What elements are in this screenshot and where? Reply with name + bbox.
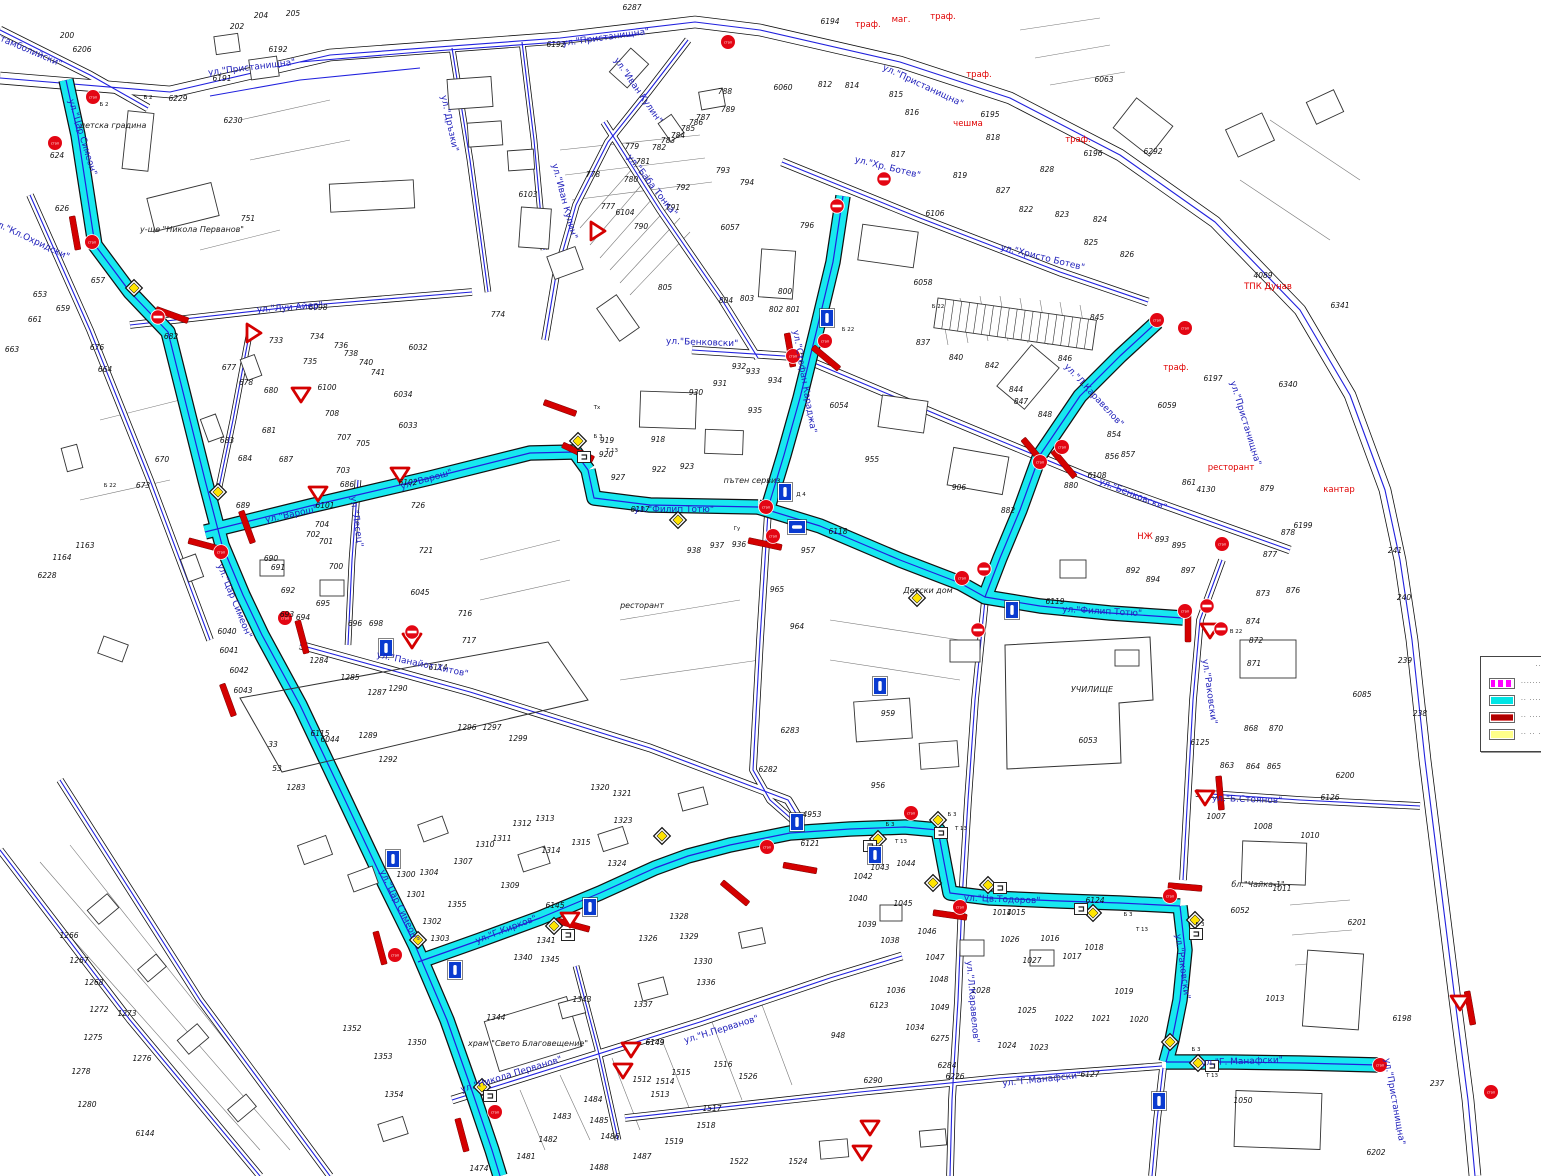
parcel-number: 4953 xyxy=(802,810,821,819)
parcel-number: 812 xyxy=(818,80,833,89)
parcel-number: 6043 xyxy=(233,686,252,695)
sign-code-label: Б 22 xyxy=(932,304,945,310)
parcel-number: 6202 xyxy=(1366,1148,1385,1157)
parcel-number: 6195 xyxy=(980,110,999,119)
one-way-sign-icon xyxy=(788,520,807,535)
parcel-number: 1289 xyxy=(358,731,377,740)
parcel-number: 1044 xyxy=(896,859,915,868)
parcel-number: 6283 xyxy=(780,726,799,735)
poi-label: траф. xyxy=(855,20,881,30)
legend: ················ ······ ······ ·· · xyxy=(1480,656,1541,752)
one-way-sign-icon xyxy=(448,961,463,980)
parcel-number: 6275 xyxy=(930,1034,949,1043)
parcel-number: 1284 xyxy=(309,656,328,665)
give-way-sign-icon xyxy=(591,222,605,240)
sign-code-label: Т 13 xyxy=(894,839,908,845)
parcel-number: 819 xyxy=(953,171,968,180)
building xyxy=(1060,560,1086,578)
parcel-number: 803 xyxy=(740,294,755,303)
parcel-number: 6200 xyxy=(1335,771,1354,780)
parcel-number: 738 xyxy=(344,349,359,358)
parcel-number: 1296 xyxy=(457,723,476,732)
parcel-number: 1043 xyxy=(870,863,889,872)
poi-label: маг. xyxy=(892,15,911,25)
parcel-number: 845 xyxy=(1090,313,1105,322)
stop-sign-icon: стоп xyxy=(1215,537,1230,552)
parcel-number: 53 xyxy=(272,764,282,773)
svg-text:стоп: стоп xyxy=(1153,318,1161,322)
parcel-number: 238 xyxy=(1413,709,1428,718)
svg-text:стоп: стоп xyxy=(1166,894,1174,898)
parcel-number: 1046 xyxy=(917,927,936,936)
parcel-number: 856 xyxy=(1105,452,1120,461)
parcel-number: 1487 xyxy=(632,1152,651,1161)
parcel-number: 702 xyxy=(306,530,321,539)
svg-text:стоп: стоп xyxy=(956,905,964,909)
svg-text:стоп: стоп xyxy=(958,576,966,580)
parcel-number: 1283 xyxy=(286,783,305,792)
parcel-number: 802 xyxy=(769,305,784,314)
sign-code-label: В 22 xyxy=(1230,629,1243,635)
stop-sign-icon: стоп xyxy=(488,1105,503,1120)
parcel-number: 826 xyxy=(1120,250,1135,259)
parcel-number: 1039 xyxy=(857,920,876,929)
parcel-number: 965 xyxy=(770,585,785,594)
legend-swatch xyxy=(1489,695,1515,706)
sign-code-label: Т 13 xyxy=(605,448,619,454)
parcel-number: 793 xyxy=(716,166,731,175)
parcel-number: 6144 xyxy=(135,1129,154,1138)
stop-sign-icon: стоп xyxy=(818,334,833,349)
poi-label: ресторант xyxy=(1208,463,1255,473)
sign-code-label: Б 3 xyxy=(1195,922,1205,928)
parcel-number: 1311 xyxy=(492,834,511,843)
parcel-number: 1336 xyxy=(696,978,715,987)
parcel-number: 716 xyxy=(458,609,473,618)
parcel-number: 1314 xyxy=(541,846,560,855)
parcel-number: 794 xyxy=(740,178,755,187)
street-name-label: ул."Лесец" xyxy=(347,496,364,548)
parcel-number: 1517 xyxy=(702,1104,721,1113)
parcel-number: 1482 xyxy=(538,1135,557,1144)
parcel-number: 1307 xyxy=(453,857,472,866)
parcel-number: 6041 xyxy=(219,646,238,655)
road-closure-bar-icon xyxy=(295,620,310,654)
parcel-number: 6042 xyxy=(229,666,248,675)
parcel-number: 1010 xyxy=(1300,831,1319,840)
parcel-number: 686 xyxy=(340,480,355,489)
parcel-number: 687 xyxy=(279,455,294,464)
svg-text:стоп: стоп xyxy=(217,550,225,554)
parcel-number: 801 xyxy=(786,305,800,314)
parcel-number: 955 xyxy=(865,455,880,464)
parcel-number: 863 xyxy=(1220,761,1235,770)
sign-code-label: Б 3 xyxy=(947,812,957,818)
parcel-number: 1344 xyxy=(486,1013,505,1022)
parcel-number: 717 xyxy=(462,636,477,645)
city-map[interactable]: стопстопстопстопстопстопстопстопстопстоп… xyxy=(0,0,1541,1176)
parcel-number: 1300 xyxy=(396,870,415,879)
parcel-number: 661 xyxy=(28,315,42,324)
building xyxy=(919,741,959,770)
parcel-number: 918 xyxy=(651,435,666,444)
legend-header-dots: ····· xyxy=(1489,663,1541,675)
building xyxy=(1241,841,1306,885)
one-way-sign-icon xyxy=(386,850,401,869)
building xyxy=(228,1094,257,1122)
parcel-number: 1515 xyxy=(671,1068,690,1077)
stop-sign-icon: стоп xyxy=(721,35,736,50)
svg-text:стоп: стоп xyxy=(724,40,732,44)
parcel-number: 694 xyxy=(296,613,311,622)
one-way-sign-icon xyxy=(873,677,888,696)
parcel-number: 933 xyxy=(746,367,761,376)
parcel-number: 957 xyxy=(801,546,816,555)
parcel-number: 1280 xyxy=(77,1100,96,1109)
parcel-number: 6106 xyxy=(925,209,944,218)
one-way-sign-icon xyxy=(868,846,883,865)
parcel-number: 848 xyxy=(1038,410,1053,419)
no-entry-sign-icon xyxy=(1200,599,1214,613)
parcel-number: 6058 xyxy=(913,278,932,287)
parcel-number: 6282 xyxy=(758,765,777,774)
parcel-number: 6230 xyxy=(223,116,242,125)
building xyxy=(507,149,534,171)
parcel-number: 837 xyxy=(916,338,931,347)
parcel-number: 6197 xyxy=(1203,374,1222,383)
give-way-sign-icon xyxy=(853,1146,871,1160)
parcel-number: 865 xyxy=(1267,762,1282,771)
building xyxy=(378,1116,408,1141)
parcel-number: 857 xyxy=(1121,450,1136,459)
parcel-number: 877 xyxy=(1263,550,1278,559)
one-way-sign-icon xyxy=(778,483,793,502)
no-entry-sign-icon xyxy=(971,623,985,637)
parcel-number: 1268 xyxy=(84,978,103,987)
building xyxy=(348,866,379,892)
street-name-label: ул."Цв.Тодоров" xyxy=(964,894,1041,907)
parcel-number: 959 xyxy=(881,709,896,718)
parcel-number: 690 xyxy=(264,554,279,563)
sign-plate-icon xyxy=(1075,904,1088,915)
legend-swatch xyxy=(1489,678,1515,689)
stop-sign-icon: стоп xyxy=(86,90,101,105)
parcel-number: 932 xyxy=(732,362,747,371)
parcel-number: 733 xyxy=(269,336,284,345)
place-label: у-ще "Никола Перванов" xyxy=(139,225,244,234)
building xyxy=(98,636,129,662)
svg-text:стоп: стоп xyxy=(1181,609,1189,613)
building xyxy=(960,940,984,956)
parcel-number: 6124 xyxy=(1085,896,1104,905)
sign-code-label: Б 3 xyxy=(1191,1047,1201,1053)
parcel-number: 1015 xyxy=(1006,908,1025,917)
parcel-number: 659 xyxy=(56,304,71,313)
parcel-number: 792 xyxy=(676,183,691,192)
svg-text:стоп: стоп xyxy=(1036,460,1044,464)
parcel-number: 906 xyxy=(952,483,967,492)
street-name-label: ул."Раковски" xyxy=(1199,659,1218,725)
building xyxy=(597,295,640,342)
sign-code-label: Б 2 xyxy=(99,102,108,108)
building xyxy=(819,1139,848,1159)
legend-item: ·· ···· xyxy=(1489,692,1541,709)
parcel-number: 1275 xyxy=(83,1033,102,1042)
building xyxy=(329,180,414,212)
parcel-number: 6063 xyxy=(1094,75,1113,84)
svg-text:стоп: стоп xyxy=(763,845,771,849)
sign-plate-icon xyxy=(578,452,591,463)
parcel-number: 1481 xyxy=(516,1152,535,1161)
parcel-number: 1048 xyxy=(929,975,948,984)
parcel-number: 1309 xyxy=(500,881,519,890)
parcel-number: 740 xyxy=(359,358,374,367)
parcel-number: 735 xyxy=(303,357,318,366)
parcel-number: 6103 xyxy=(518,190,537,199)
parcel-number: 664 xyxy=(98,365,113,374)
parcel-number: 800 xyxy=(778,287,793,296)
parcel-number: 6123 xyxy=(869,1001,888,1010)
parcel-number: 6060 xyxy=(773,83,792,92)
legend-swatch xyxy=(1489,729,1515,740)
building xyxy=(61,444,83,471)
legend-label: ········· xyxy=(1521,680,1541,687)
parcel-number: 6206 xyxy=(72,45,91,54)
parcel-number: 1301 xyxy=(406,890,425,899)
give-way-sign-icon xyxy=(861,1121,879,1135)
parcel-number: 695 xyxy=(316,599,331,608)
svg-text:стоп: стоп xyxy=(89,95,97,99)
parcel-number: 817 xyxy=(891,150,906,159)
parcel-number: 937 xyxy=(710,541,725,550)
building xyxy=(1306,90,1343,124)
parcel-number: 241 xyxy=(1388,546,1402,555)
parcel-number: 872 xyxy=(1249,636,1264,645)
parcel-number: 823 xyxy=(1055,210,1070,219)
svg-text:стоп: стоп xyxy=(51,141,59,145)
parcel-number: 882 xyxy=(1001,506,1016,515)
parcel-number: 6115 xyxy=(310,729,329,738)
priority-road-sign-icon xyxy=(653,827,671,845)
svg-text:стоп: стоп xyxy=(769,534,777,538)
parcel-number: 927 xyxy=(611,473,626,482)
parcel-number: 876 xyxy=(1286,586,1301,595)
parcel-number: 1038 xyxy=(880,936,899,945)
parcel-number: 1285 xyxy=(340,673,359,682)
parcel-number: 626 xyxy=(55,204,70,213)
parcel-number: 1329 xyxy=(679,932,698,941)
building xyxy=(177,1024,208,1055)
one-way-sign-icon xyxy=(583,898,598,917)
parcel-number: 1050 xyxy=(1233,1096,1252,1105)
building xyxy=(214,33,240,54)
street-name-label: ул."Бенковски" xyxy=(1097,477,1168,513)
parcel-number: 935 xyxy=(748,406,763,415)
parcel-number: 6201 xyxy=(1347,918,1366,927)
parcel-number: 692 xyxy=(281,586,296,595)
road-closure-bar-icon xyxy=(543,399,577,416)
parcel-number: 1324 xyxy=(607,859,626,868)
no-entry-sign-icon xyxy=(151,310,165,324)
parcel-number: 936 xyxy=(732,540,747,549)
parcel-number: 6125 xyxy=(1190,738,1209,747)
sign-plate-icon xyxy=(562,930,575,941)
parcel-number: 696 xyxy=(348,619,363,628)
parcel-number: 624 xyxy=(50,151,65,160)
stop-sign-icon: стоп xyxy=(85,235,100,250)
parcel-number: 1474 xyxy=(469,1164,488,1173)
parcel-number: 870 xyxy=(1269,724,1284,733)
parcel-number: 790 xyxy=(634,222,649,231)
svg-text:стоп: стоп xyxy=(1181,326,1189,330)
stop-sign-icon: стоп xyxy=(388,948,403,963)
building xyxy=(950,640,980,662)
parcel-number: 828 xyxy=(1040,165,1055,174)
svg-text:стоп: стоп xyxy=(1218,542,1226,546)
poi-label: ТПК Дунав xyxy=(1243,282,1292,292)
parcel-number: 1040 xyxy=(848,894,867,903)
sign-code-label: Гу xyxy=(734,526,741,532)
parcel-number: 703 xyxy=(336,466,351,475)
parcel-number: 1483 xyxy=(552,1112,571,1121)
parcel-number: 6284 xyxy=(937,1061,956,1070)
road-closure-bar-icon xyxy=(783,862,818,874)
parcel-number: 854 xyxy=(1107,430,1122,439)
stop-sign-icon: стоп xyxy=(955,571,970,586)
parcel-number: 6194 xyxy=(820,17,839,26)
parcel-number: 804 xyxy=(719,296,734,305)
legend-label: ·· ···· xyxy=(1521,697,1541,704)
parcel-number: 840 xyxy=(949,353,964,362)
parcel-number: 1340 xyxy=(513,953,532,962)
parcel-number: 205 xyxy=(286,9,301,18)
building xyxy=(519,207,552,249)
svg-text:стоп: стоп xyxy=(821,339,829,343)
building xyxy=(638,977,668,1001)
parcel-number: 895 xyxy=(1172,541,1187,550)
parcel-number: 678 xyxy=(239,378,254,387)
parcel-number: 1485 xyxy=(589,1116,608,1125)
sign-code-label: Б 22 xyxy=(842,327,855,333)
place-label: ресторант xyxy=(619,601,664,610)
no-entry-sign-icon xyxy=(977,562,991,576)
parcel-number: 846 xyxy=(1058,354,1073,363)
poi-label: чешма xyxy=(953,119,983,129)
parcel-number: 956 xyxy=(871,781,886,790)
parcel-number: 1049 xyxy=(930,1003,949,1012)
parcel-number: 6059 xyxy=(1157,401,1176,410)
parcel-number: 239 xyxy=(1398,656,1413,665)
parcel-number: 6085 xyxy=(1352,690,1371,699)
map-svg: стопстопстопстопстопстопстопстопстопстоп… xyxy=(0,0,1541,1176)
stop-sign-icon: стоп xyxy=(1163,889,1178,904)
road-closure-bar-icon xyxy=(373,931,388,965)
parcel-number: 1034 xyxy=(905,1023,924,1032)
parcel-number: 1024 xyxy=(997,1041,1016,1050)
parcel-number: 6192 xyxy=(268,45,287,54)
parcel-number: 1350 xyxy=(407,1038,426,1047)
one-way-sign-icon xyxy=(1005,601,1020,620)
parcel-number: 1299 xyxy=(508,734,527,743)
building-layer xyxy=(61,33,1363,1159)
sign-plate-icon xyxy=(935,828,948,839)
parcel-number: 663 xyxy=(5,345,20,354)
parcel-number: 864 xyxy=(1246,762,1261,771)
stop-sign-icon: стоп xyxy=(904,806,919,821)
poi-label: НЖ xyxy=(1137,532,1153,542)
parcel-number: 934 xyxy=(768,376,783,385)
parcel-number: 1290 xyxy=(388,684,407,693)
parcel-number: 964 xyxy=(790,622,805,631)
sign-code-label: Т 13 xyxy=(1135,927,1149,933)
sign-code-label: В 2 xyxy=(143,95,152,101)
svg-text:стоп: стоп xyxy=(762,505,770,509)
parcel-number: 1304 xyxy=(419,868,438,877)
parcel-number: 844 xyxy=(1009,385,1024,394)
parcel-number: 6149 xyxy=(645,1038,664,1047)
parcel-number: 816 xyxy=(905,108,920,117)
parcel-number: 1345 xyxy=(540,955,559,964)
parcel-number: 1047 xyxy=(925,953,944,962)
parcel-number: 1276 xyxy=(132,1054,151,1063)
parcel-number: 6121 xyxy=(800,839,819,848)
legend-swatch xyxy=(1489,712,1515,723)
parcel-number: 6341 xyxy=(1330,301,1349,310)
place-label: храм "Свето Благовещение" xyxy=(467,1039,588,1048)
one-way-sign-icon xyxy=(1152,1092,1167,1111)
parcel-number: 707 xyxy=(337,433,352,442)
sign-code-label: Б 3 xyxy=(885,822,895,828)
parcel-number: 1330 xyxy=(693,957,712,966)
parcel-number: 1036 xyxy=(886,986,905,995)
svg-text:стоп: стоп xyxy=(491,1110,499,1114)
legend-item: ·· ·· · xyxy=(1489,726,1541,743)
building xyxy=(678,787,708,811)
building xyxy=(447,77,493,110)
stop-sign-icon: стоп xyxy=(1484,1085,1499,1100)
parcel-number: 1019 xyxy=(1114,987,1133,996)
parcel-number: 780 xyxy=(624,175,639,184)
parcel-number: 1526 xyxy=(738,1072,757,1081)
parcel-number: 6040 xyxy=(217,627,236,636)
parcel-number: 892 xyxy=(1126,566,1141,575)
parcel-number: 6290 xyxy=(863,1076,882,1085)
svg-text:стоп: стоп xyxy=(1487,1090,1495,1094)
stop-sign-icon: стоп xyxy=(1178,321,1193,336)
parcel-number: 825 xyxy=(1084,238,1099,247)
parcel-number: 1273 xyxy=(117,1009,136,1018)
parcel-number: 680 xyxy=(264,386,279,395)
parcel-number: 1343 xyxy=(572,995,591,1004)
parcel-number: 822 xyxy=(1019,205,1034,214)
parcel-number: 880 xyxy=(1064,481,1079,490)
parcel-number: 6287 xyxy=(622,3,641,12)
parcel-number: 673 xyxy=(136,481,151,490)
parcel-number: 1512 xyxy=(632,1075,651,1084)
parcel-number: 1514 xyxy=(655,1077,674,1086)
building xyxy=(87,894,118,925)
poi-label: траф. xyxy=(930,12,956,22)
parcel-number: 676 xyxy=(90,343,105,352)
parcel-number: 1486 xyxy=(600,1132,619,1141)
parcel-number: 815 xyxy=(889,90,904,99)
parcel-number: 657 xyxy=(91,276,106,285)
parcel-number: 779 xyxy=(625,142,640,151)
poi-label: траф. xyxy=(966,70,992,80)
parcel-number: 774 xyxy=(491,310,506,319)
parcel-number: 1354 xyxy=(384,1090,403,1099)
sign-code-label: Б 3 xyxy=(1123,912,1133,918)
